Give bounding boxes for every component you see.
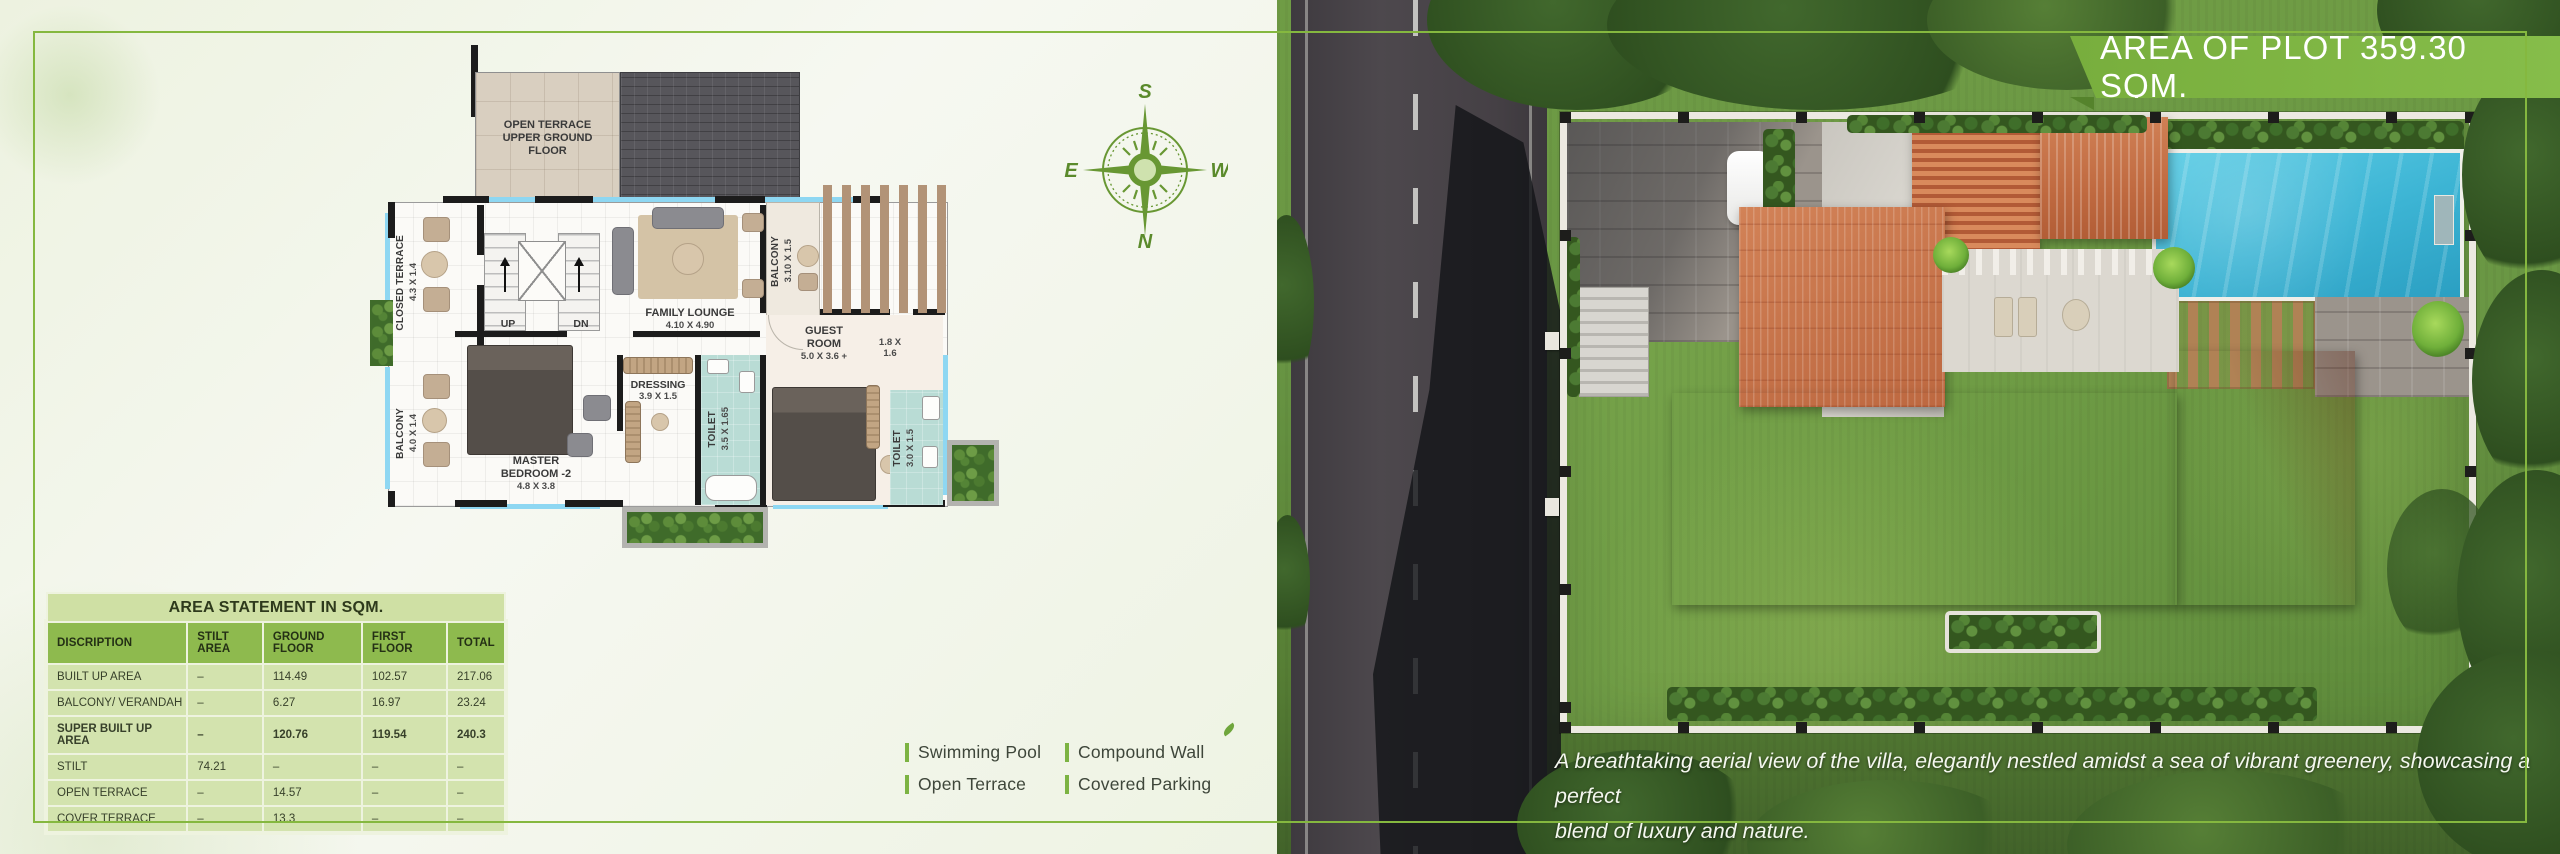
- legend-bar-icon: [905, 743, 909, 762]
- brochure-page: OPEN TERRACE UPPER GROUND FLOOR: [0, 0, 2560, 854]
- legend-label: Swimming Pool: [918, 742, 1041, 763]
- staircase: [484, 205, 600, 331]
- table-row: OPEN TERRACE– 14.57– –: [47, 780, 505, 806]
- balcony-left-dims: 4.0 X 1.4: [408, 414, 419, 452]
- roof-hatch-area: [620, 72, 800, 205]
- chair: [423, 287, 450, 312]
- legend-item-swimming-pool: Swimming Pool: [905, 742, 1065, 763]
- balcony-planter: [1945, 611, 2101, 653]
- gate-pillar: [1545, 498, 1559, 516]
- balcony-right: BALCONY 3.10 X 1.5: [766, 202, 820, 318]
- lounger: [1994, 297, 2013, 337]
- area-table-title: AREA STATEMENT IN SQM.: [46, 592, 506, 621]
- plan-panel: OPEN TERRACE UPPER GROUND FLOOR: [0, 0, 1277, 854]
- coffee-table: [672, 243, 704, 275]
- compass-east: E: [1064, 160, 1078, 182]
- gate-pillar: [1545, 332, 1559, 350]
- road-edge-line: [1305, 0, 1308, 854]
- wall-segment: [443, 196, 489, 203]
- dressing-label: DRESSING: [623, 379, 693, 391]
- caption-line-2: blend of luxury and nature.: [1555, 814, 2545, 849]
- legend-label: Compound Wall: [1078, 742, 1204, 763]
- legend-item-covered-parking: Covered Parking: [1065, 774, 1245, 795]
- tree: [2472, 270, 2560, 490]
- compass-south: S: [1138, 81, 1152, 103]
- master-bed: [467, 345, 573, 455]
- guest-room-label-2: ROOM: [784, 338, 864, 351]
- sink: [922, 396, 940, 420]
- header-total: TOTAL: [447, 622, 505, 664]
- sink: [707, 359, 729, 374]
- wardrobe: [623, 357, 693, 374]
- legend-item-open-terrace: Open Terrace: [905, 774, 1065, 795]
- balcony-right-label: BALCONY: [770, 236, 781, 287]
- open-terrace-label-3: FLOOR: [503, 145, 593, 158]
- balcony-right-dims: 3.10 X 1.5: [783, 239, 794, 282]
- master-bedroom-label-2: BEDROOM -2: [471, 468, 601, 481]
- area-statement-table: AREA STATEMENT IN SQM. DISCRIPTION STILT…: [46, 592, 506, 833]
- wall-posts-bottom: [1560, 722, 2476, 733]
- roof-hip-shading: [2229, 351, 2355, 605]
- guest-room-dims: 5.0 X 3.6 +: [784, 351, 864, 362]
- caption-line-1: A breathtaking aerial view of the villa,…: [1555, 744, 2545, 814]
- table-row: BALCONY/ VERANDAH– 6.2716.97 23.24: [47, 690, 505, 716]
- pergola-plan: [823, 185, 951, 313]
- legend-label: Open Terrace: [918, 774, 1026, 795]
- roof-wing-right: [2175, 351, 2355, 605]
- wall-segment: [565, 500, 623, 507]
- garden-bush: [2412, 301, 2464, 357]
- closed-terrace-label: CLOSED TERRACE: [395, 235, 406, 331]
- leaf-icon: [1221, 723, 1236, 737]
- toilet-guest-label: TOILET: [892, 430, 903, 467]
- stairs-dn-label: DN: [563, 318, 599, 330]
- toilet-master-label: TOILET: [707, 411, 718, 448]
- header-first-floor: FIRST FLOOR: [362, 622, 447, 664]
- up-arrow-icon: [500, 257, 510, 292]
- guest-room-label-1: GUEST: [784, 325, 864, 338]
- courtyard-terrace: [1942, 249, 2179, 372]
- roof-section-c: [1739, 207, 1945, 407]
- master-bedroom-label-1: MASTER: [471, 455, 601, 468]
- legend-item-compound-wall: Compound Wall: [1065, 742, 1245, 763]
- wall-segment: [477, 205, 484, 255]
- wall-segment: [455, 500, 507, 507]
- floor-plan: OPEN TERRACE UPPER GROUND FLOOR: [385, 55, 1025, 555]
- open-terrace: OPEN TERRACE UPPER GROUND FLOOR: [475, 72, 620, 205]
- chair: [798, 273, 818, 291]
- wall-segment: [535, 196, 593, 203]
- stool: [651, 413, 669, 431]
- round-table: [422, 408, 447, 433]
- planter-right: [947, 440, 999, 506]
- lounger: [2018, 297, 2037, 337]
- side-chair: [742, 213, 764, 232]
- stairs-up-label: UP: [490, 318, 526, 330]
- legend-bar-icon: [905, 775, 909, 794]
- open-terrace-label-1: OPEN TERRACE: [503, 119, 593, 132]
- round-table: [421, 251, 448, 278]
- wardrobe: [625, 401, 641, 463]
- chair: [423, 217, 450, 242]
- side-chair: [742, 279, 764, 298]
- plot-area-banner: AREA OF PLOT 359.30 SQM.: [2070, 36, 2560, 98]
- swimming-pool: [2152, 149, 2464, 301]
- header-ground-floor: GROUND FLOOR: [263, 622, 362, 664]
- roof-section-b: [2040, 117, 2168, 239]
- sofa: [652, 207, 724, 229]
- table-header-row: DISCRIPTION STILT AREA GROUND FLOOR FIRS…: [47, 622, 505, 664]
- compass-west: W: [1211, 160, 1228, 182]
- tv-unit: [866, 385, 880, 449]
- guest-bed: [772, 387, 876, 501]
- compass-north: N: [1138, 231, 1153, 250]
- dressing-room: DRESSING 3.9 X 1.5: [623, 355, 695, 433]
- caption-text: A breathtaking aerial view of the villa,…: [1555, 744, 2545, 849]
- wall-segment: [715, 196, 765, 203]
- toilet-master: TOILET 3.5 X 1.65: [701, 355, 760, 505]
- roof-main-upper: [1945, 372, 2177, 436]
- courtyard-plant: [1933, 237, 1969, 273]
- aerial-render-panel: AREA OF PLOT 359.30 SQM. A breathtaking …: [1277, 0, 2560, 854]
- plot-area-text: AREA OF PLOT 359.30 SQM.: [2100, 29, 2560, 105]
- bathtub: [705, 475, 757, 501]
- chair: [423, 374, 450, 399]
- guest-room-dims-extra-2: 1.6: [868, 348, 912, 359]
- stair-well: [518, 241, 566, 301]
- banner-fold: [2070, 97, 2094, 110]
- header-discription: DISCRIPTION: [47, 622, 187, 664]
- legend-bar-icon: [1065, 743, 1069, 762]
- wall-shrub-row-bottom: [1667, 687, 2317, 721]
- table-row: SUPER BUILT UP AREA– 120.76119.54 240.3: [47, 716, 505, 754]
- toilet-guest-dims: 3.0 X 1.5: [905, 429, 916, 467]
- guest-room-dims-extra-1: 1.8 X: [868, 337, 912, 348]
- family-lounge-label: FAMILY LOUNGE 4.10 X 4.90: [630, 307, 750, 331]
- master-bedroom: MASTER BEDROOM -2 4.8 X 3.8: [455, 337, 617, 500]
- wall-posts-top: [1560, 112, 2476, 123]
- closed-terrace-dims: 4.3 X 1.4: [408, 263, 419, 301]
- patio-chair: [2062, 299, 2090, 331]
- table-row: BUILT UP AREA– 114.49102.57 217.06: [47, 664, 505, 690]
- planter-bottom: [622, 507, 768, 548]
- round-table: [797, 245, 819, 267]
- toilet-master-dims: 3.5 X 1.65: [720, 407, 731, 450]
- wc: [739, 371, 755, 393]
- white-pergola-beams: [1942, 249, 2179, 275]
- master-bedroom-dims: 4.8 X 3.8: [471, 481, 601, 492]
- courtyard-plant: [2153, 247, 2195, 289]
- planter-left: [370, 300, 393, 366]
- wc: [922, 446, 938, 468]
- toilet-guest: TOILET 3.0 X 1.5: [890, 390, 943, 505]
- armchair: [583, 395, 611, 421]
- sofa: [612, 227, 634, 295]
- down-arrow-icon: [574, 257, 584, 292]
- pool-step: [2434, 195, 2454, 245]
- open-terrace-label-2: UPPER GROUND: [503, 132, 593, 145]
- balcony-left-label: BALCONY: [395, 408, 406, 459]
- villa-plot: [1560, 112, 2476, 733]
- balcony-left: BALCONY 4.0 X 1.4: [390, 360, 455, 507]
- compass-rose: S N E W: [1063, 80, 1228, 250]
- closed-terrace: CLOSED TERRACE 4.3 X 1.4: [390, 205, 455, 360]
- wall-posts-left: [1560, 112, 1571, 733]
- legend-bar-icon: [1065, 775, 1069, 794]
- chair: [423, 442, 450, 467]
- table-row: COVER TERRACE– 13.3– –: [47, 806, 505, 832]
- map-legend: Swimming Pool Compound Wall Open Terrace…: [905, 742, 1245, 795]
- entrance-steps: [1579, 287, 1649, 397]
- table-row: STILT74.21 –– –: [47, 754, 505, 780]
- header-stilt-area: STILT AREA: [187, 622, 263, 664]
- legend-label: Covered Parking: [1078, 774, 1211, 795]
- armchair: [567, 433, 593, 457]
